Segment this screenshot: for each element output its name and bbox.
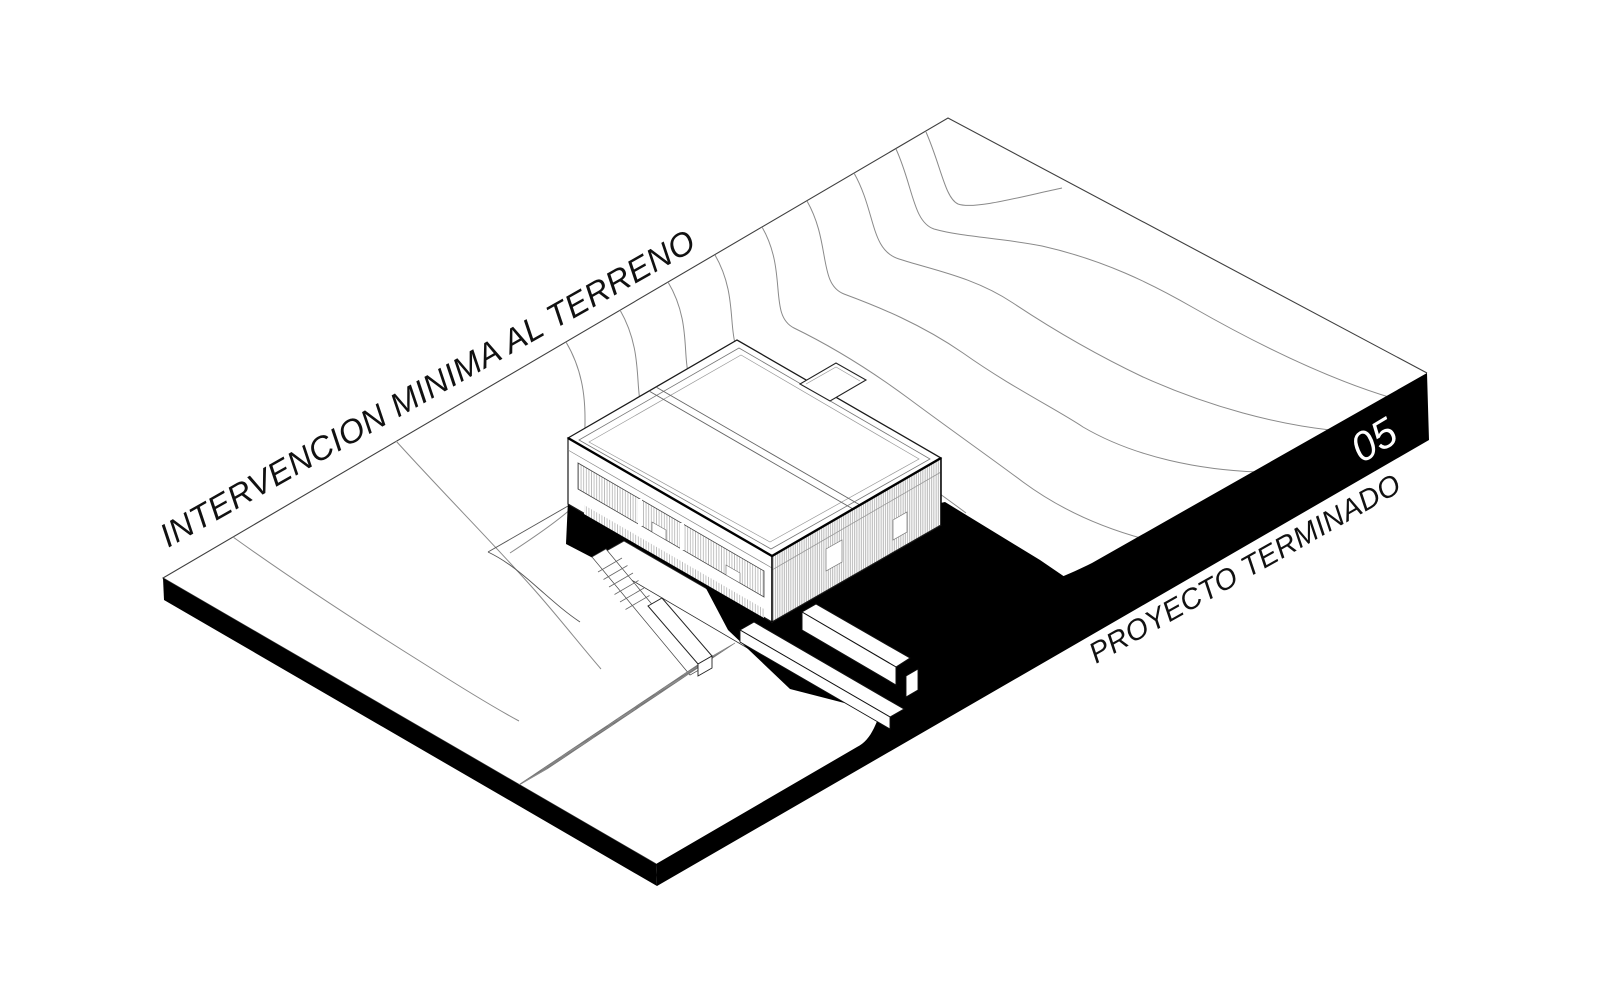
axonometric-site-diagram: INTERVENCION MINIMA AL TERRENO 05 PROYEC… <box>0 0 1600 1008</box>
diagram-canvas: INTERVENCION MINIMA AL TERRENO 05 PROYEC… <box>0 0 1600 1008</box>
